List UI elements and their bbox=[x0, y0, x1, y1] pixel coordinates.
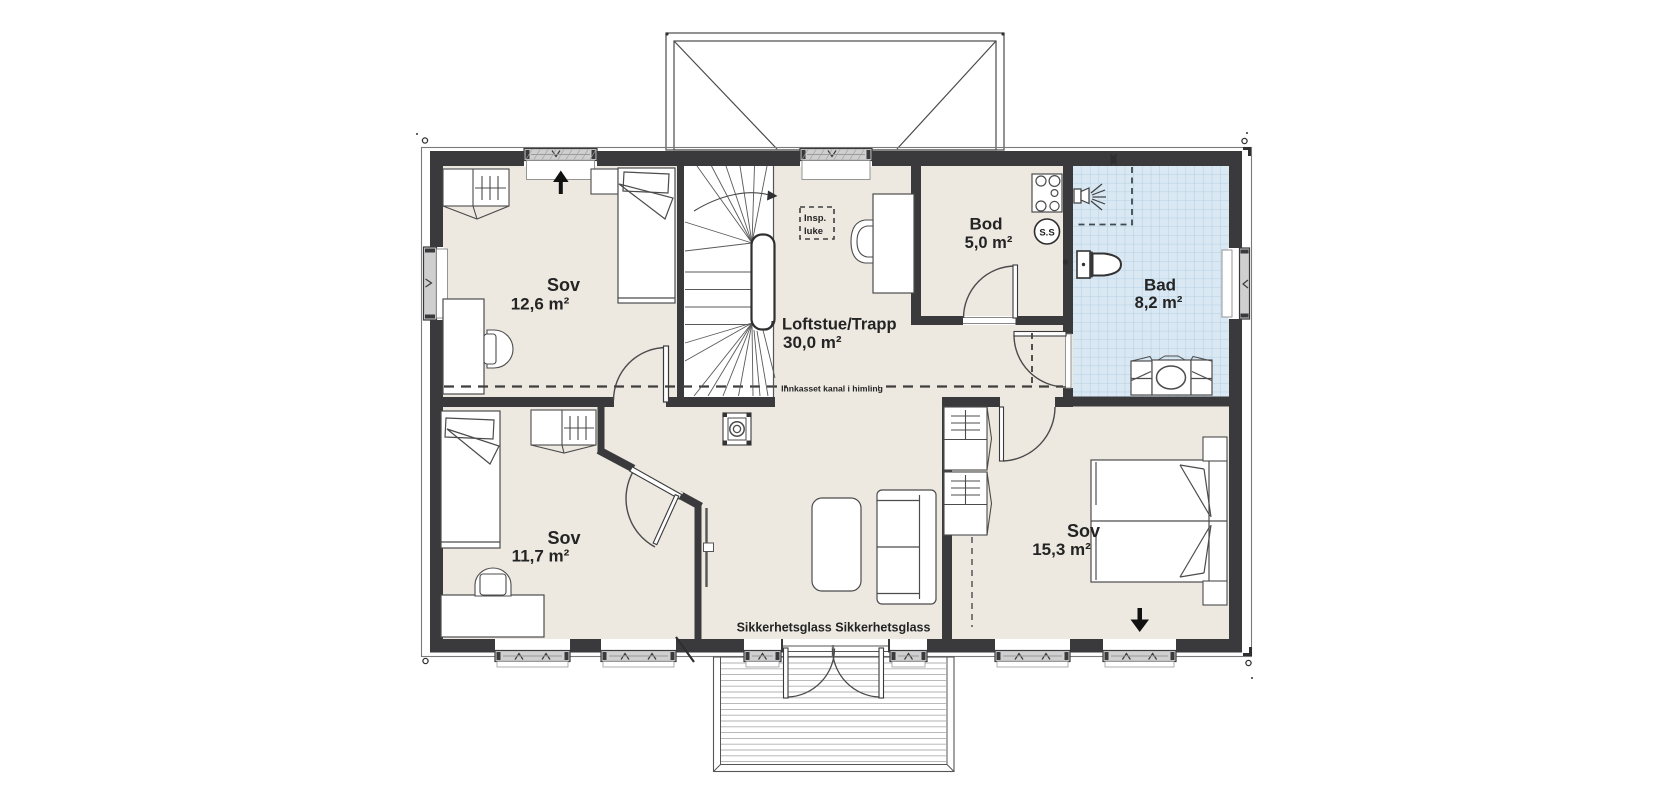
svg-text:Bod: Bod bbox=[969, 215, 1002, 234]
svg-text:15,3 m²: 15,3 m² bbox=[1032, 540, 1091, 559]
svg-text:Sikkerhetsglass Sikkerhetsglas: Sikkerhetsglass Sikkerhetsglass bbox=[737, 621, 931, 635]
svg-text:8,2 m²: 8,2 m² bbox=[1135, 294, 1183, 312]
svg-text:30,0 m²: 30,0 m² bbox=[783, 333, 842, 352]
svg-text:Innkasset kanal i himling: Innkasset kanal i himling bbox=[781, 384, 883, 394]
svg-text:Loftstue/Trapp: Loftstue/Trapp bbox=[782, 316, 897, 334]
svg-text:S.S: S.S bbox=[1039, 228, 1054, 239]
svg-text:Sov: Sov bbox=[1067, 521, 1100, 541]
svg-text:Bad: Bad bbox=[1144, 276, 1176, 295]
svg-text:Sov: Sov bbox=[547, 528, 580, 548]
svg-text:Sov: Sov bbox=[547, 275, 580, 295]
svg-text:Insp.: Insp. bbox=[804, 213, 826, 224]
svg-text:12,6 m²: 12,6 m² bbox=[511, 295, 570, 314]
svg-text:luke: luke bbox=[804, 226, 823, 237]
svg-text:11,7 m²: 11,7 m² bbox=[512, 547, 570, 566]
svg-text:5,0 m²: 5,0 m² bbox=[965, 234, 1013, 252]
